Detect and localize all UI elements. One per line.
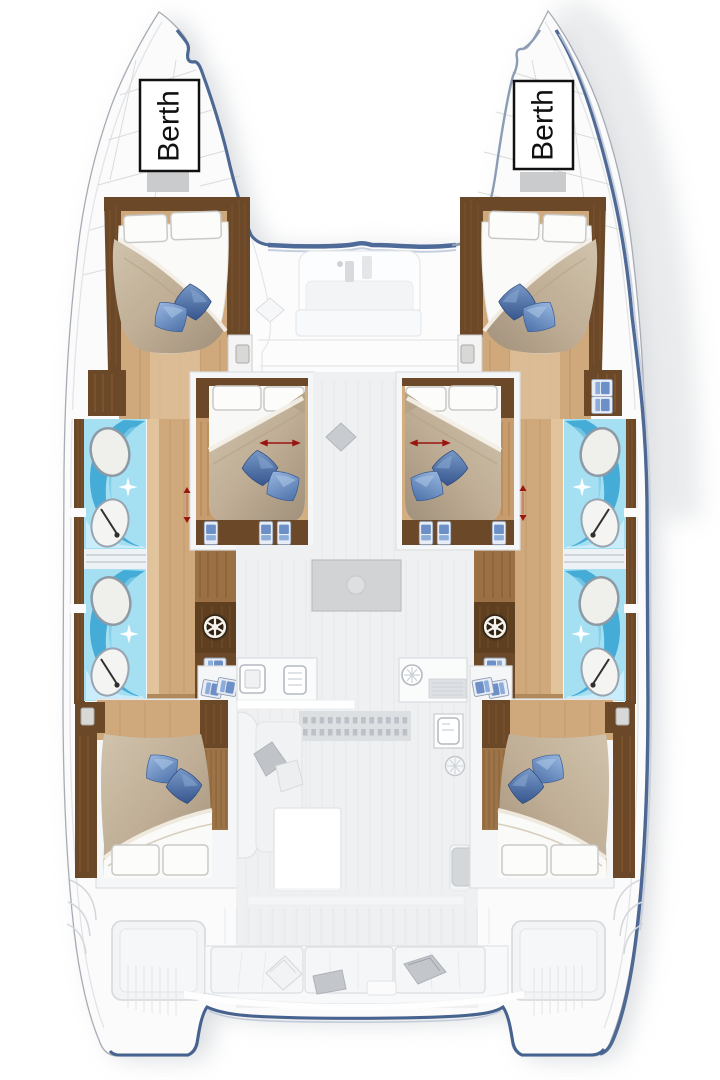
svg-text:Berth: Berth [527, 89, 560, 161]
svg-text:Berth: Berth [153, 90, 186, 162]
